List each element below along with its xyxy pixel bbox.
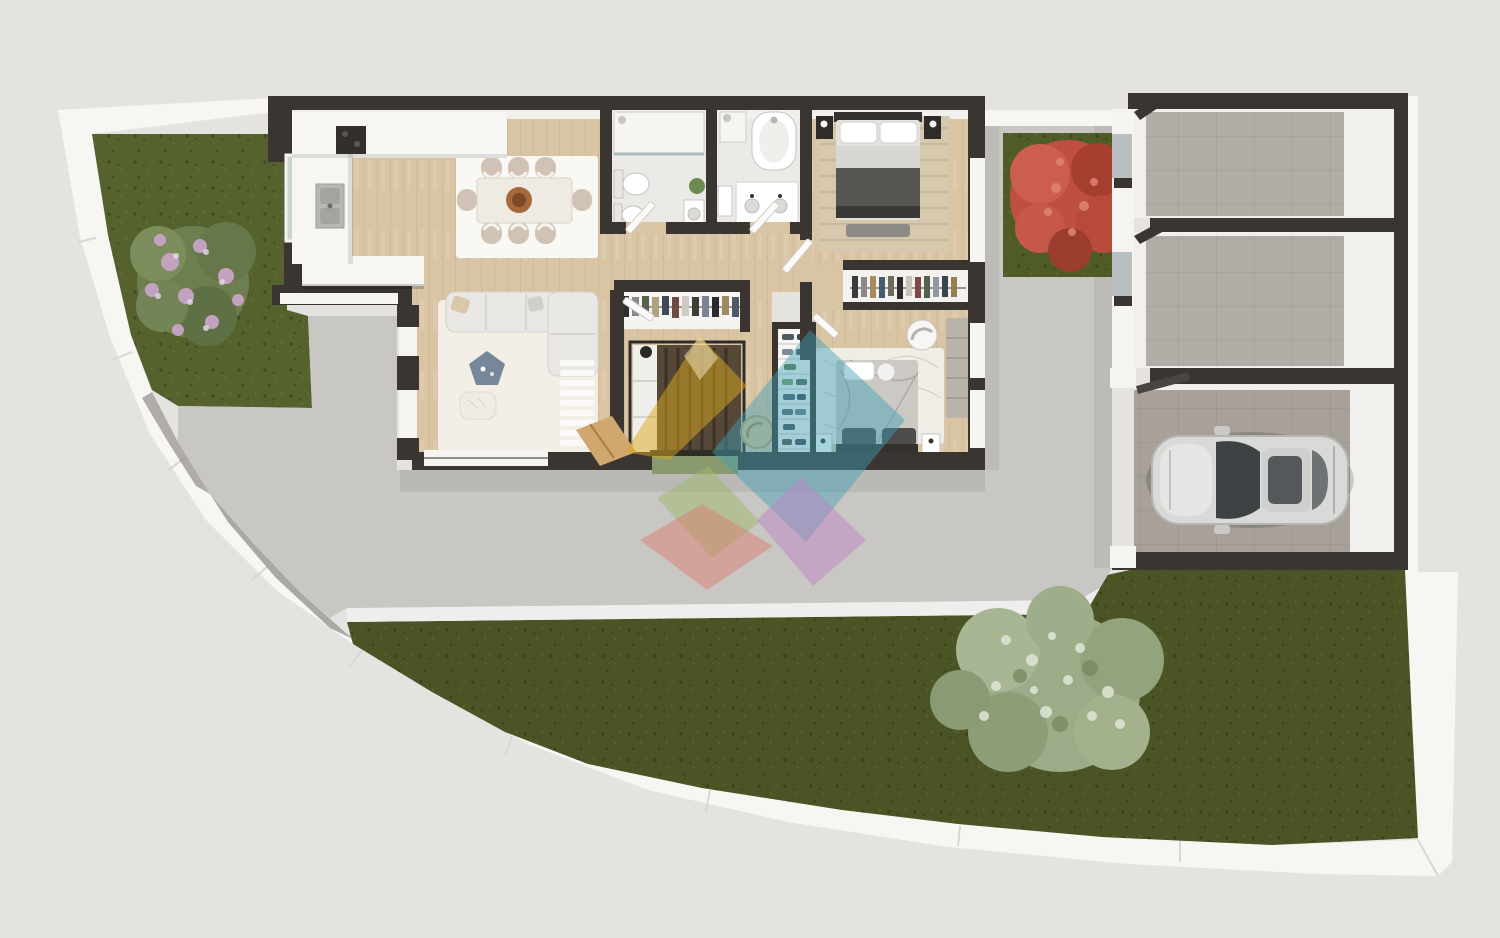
toilet-tank [614, 170, 623, 198]
peninsula-shadow [302, 284, 424, 289]
sage-tree-lobe [1026, 586, 1094, 654]
bathroom-plant [689, 178, 705, 194]
sage-tree-lobe [930, 670, 990, 730]
shower-tray [614, 112, 704, 154]
toilet-bowl [623, 173, 649, 195]
living-window [399, 390, 417, 438]
car-hood [1160, 444, 1212, 516]
house-east-shadow [985, 126, 999, 470]
storage1-grid [1146, 112, 1344, 216]
facade-pier [1114, 178, 1132, 188]
bathtub-inner [759, 119, 789, 163]
facade-glass [1112, 252, 1132, 296]
cooktop [336, 126, 366, 154]
shower-head [618, 116, 626, 124]
sink-basin [320, 188, 340, 204]
table-decor-dot [481, 367, 486, 372]
wardrobe [946, 318, 968, 418]
floorplan-svg [0, 0, 1500, 938]
shower2-head [723, 114, 731, 122]
bedroom1 [816, 112, 950, 252]
west-window-sill [280, 293, 398, 304]
car-mirror [1214, 525, 1230, 534]
centerpiece-inner [512, 193, 526, 207]
ottoman [460, 392, 496, 419]
kitchen-peninsula [302, 256, 424, 286]
faucet [778, 194, 782, 198]
kitchen-counter-north [292, 112, 507, 158]
hall-closet-frame [616, 320, 748, 329]
storage2-grid [1146, 236, 1344, 366]
tub-drain [771, 117, 778, 124]
table-decor-dot [490, 372, 494, 376]
facade-pier [1114, 296, 1132, 306]
garage-post [1110, 546, 1136, 568]
car [1146, 426, 1354, 534]
bed1-sheet [836, 146, 920, 170]
living-room [438, 292, 598, 452]
nightstand [816, 116, 833, 139]
counter-shadow [348, 152, 353, 264]
red-tree-lobe [1010, 144, 1070, 204]
bath1-sink [688, 208, 700, 220]
car-mirror [1214, 426, 1230, 435]
blossom-tree-lobe [136, 280, 188, 332]
garage-block [1110, 93, 1408, 570]
car-sunroof [1268, 456, 1302, 504]
bedroom3-window [970, 390, 985, 448]
nightstand [924, 116, 941, 139]
armchair [907, 320, 937, 350]
burner [354, 141, 360, 147]
counter-shadow [292, 154, 507, 158]
pillow [840, 122, 877, 143]
bed-bench [846, 224, 910, 237]
floorplan-render [0, 0, 1500, 938]
boundary-strip-court [985, 110, 1130, 126]
bedroom3-window [970, 323, 985, 378]
sink-basin [320, 208, 340, 224]
nightstand3 [922, 434, 940, 454]
facade-glass [1112, 134, 1132, 178]
bath2-sink [745, 199, 759, 213]
burner [342, 131, 348, 137]
bath2-cabinet [718, 186, 732, 216]
decor-dot [929, 439, 934, 444]
car-windshield [1216, 441, 1260, 519]
wall-lamp [640, 346, 652, 358]
sage-tree-lobe [1074, 694, 1150, 770]
faucet [750, 194, 754, 198]
bed1-blanket-edge [836, 206, 920, 218]
dining-area [456, 156, 598, 258]
sink-tap [328, 204, 333, 209]
sage-tree-lobe [1080, 618, 1164, 702]
pillow [880, 122, 917, 143]
garage-post [1110, 368, 1136, 388]
lamp [821, 121, 828, 128]
living-window [399, 327, 417, 356]
bedroom1-window [970, 158, 985, 262]
lamp [930, 121, 937, 128]
round-cushion [877, 363, 895, 381]
